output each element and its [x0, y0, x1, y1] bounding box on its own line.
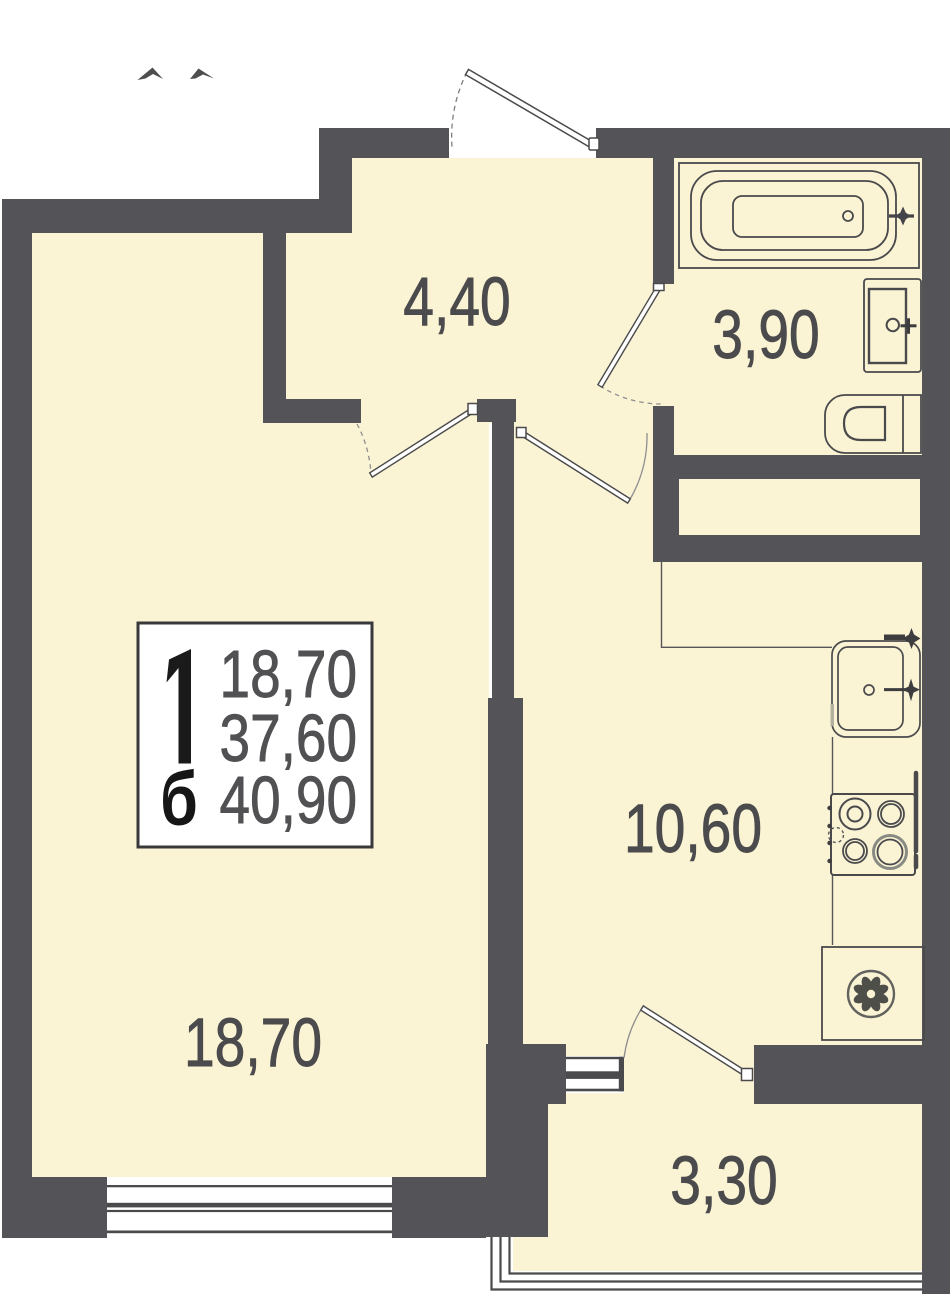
- svg-text:40,90: 40,90: [220, 763, 357, 837]
- svg-text:4,40: 4,40: [403, 263, 510, 340]
- svg-text:б: б: [160, 757, 198, 842]
- svg-text:3,30: 3,30: [670, 1142, 777, 1219]
- svg-text:10,60: 10,60: [624, 790, 762, 867]
- svg-text:18,70: 18,70: [184, 1004, 322, 1081]
- svg-text:3,90: 3,90: [712, 296, 819, 373]
